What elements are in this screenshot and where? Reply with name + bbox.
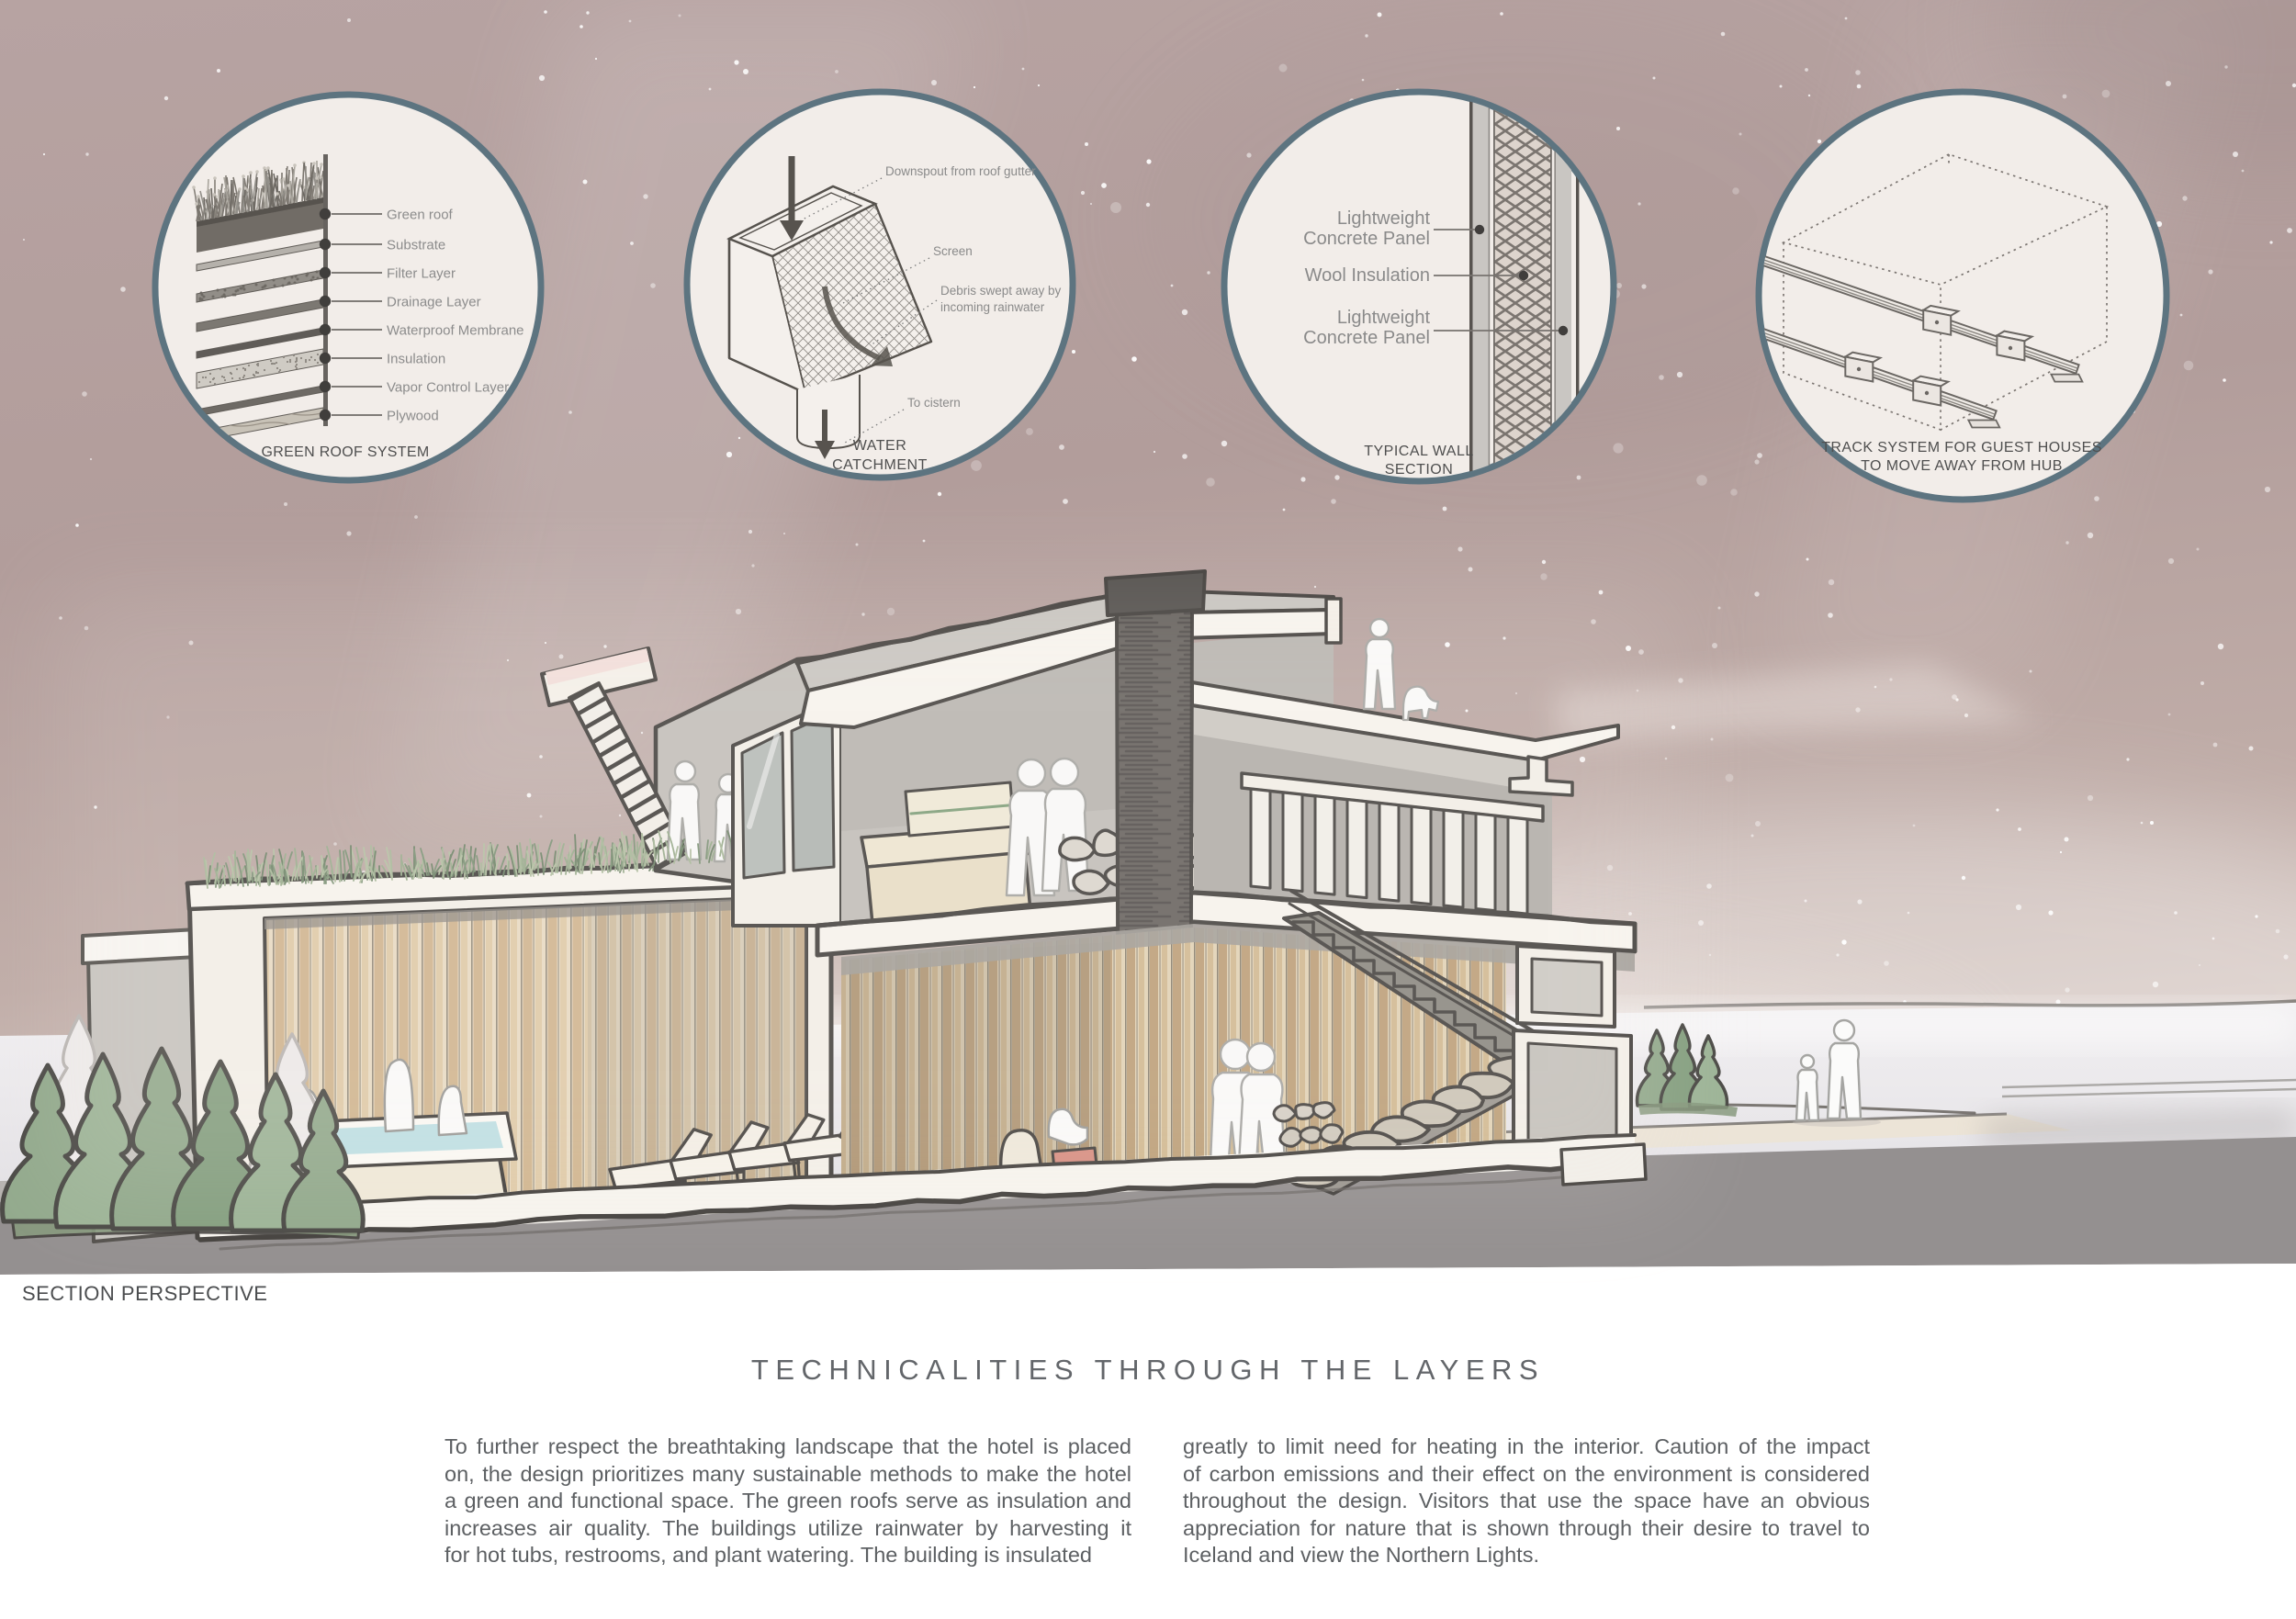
svg-text:Screen: Screen <box>933 244 973 258</box>
svg-text:Waterproof Membrane: Waterproof Membrane <box>387 323 524 339</box>
svg-text:Plywood: Plywood <box>387 409 439 424</box>
svg-text:Downspout from roof gutter: Downspout from roof gutter <box>885 164 1036 178</box>
svg-text:WATER: WATER <box>853 438 907 454</box>
svg-text:TRACK SYSTEM FOR GUEST HOUSES: TRACK SYSTEM FOR GUEST HOUSES <box>1821 440 2102 455</box>
svg-text:Vapor Control Layer: Vapor Control Layer <box>387 380 509 396</box>
svg-text:Wool Insulation: Wool Insulation <box>1305 265 1430 286</box>
svg-text:Concrete Panel: Concrete Panel <box>1303 229 1430 249</box>
svg-text:Lightweight: Lightweight <box>1337 208 1431 229</box>
svg-text:incoming rainwater: incoming rainwater <box>940 300 1045 314</box>
svg-text:GREEN ROOF SYSTEM: GREEN ROOF SYSTEM <box>262 444 430 460</box>
svg-text:TO MOVE AWAY FROM HUB: TO MOVE AWAY FROM HUB <box>1861 458 2063 474</box>
svg-text:Drainage Layer: Drainage Layer <box>387 295 481 310</box>
svg-text:Insulation: Insulation <box>387 352 445 367</box>
svg-text:CATCHMENT: CATCHMENT <box>832 457 928 473</box>
svg-text:SECTION: SECTION <box>1385 462 1454 478</box>
svg-text:Concrete Panel: Concrete Panel <box>1303 328 1430 348</box>
svg-text:Debris swept away by: Debris swept away by <box>940 284 1062 298</box>
svg-text:Filter Layer: Filter Layer <box>387 266 456 282</box>
svg-text:TYPICAL WALL: TYPICAL WALL <box>1364 444 1474 459</box>
svg-text:To cistern: To cistern <box>907 396 961 410</box>
svg-text:Lightweight: Lightweight <box>1337 308 1431 328</box>
svg-text:Green roof: Green roof <box>387 208 454 223</box>
svg-text:Substrate: Substrate <box>387 238 445 253</box>
